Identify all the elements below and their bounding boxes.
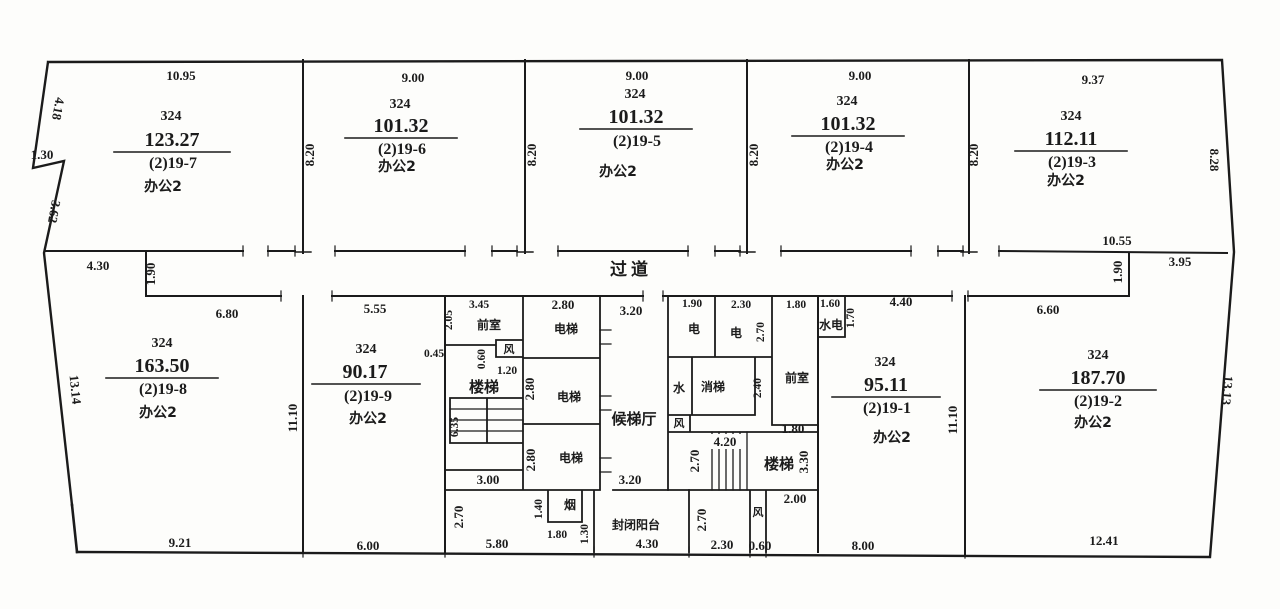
dim-u3-bottom: 10.55 <box>1102 233 1132 248</box>
unit-house-no: 324 <box>356 342 377 357</box>
dim-u5-top: 9.00 <box>626 68 649 83</box>
dim-balcony-w: 4.30 <box>636 536 659 551</box>
dim-front-h: 2.05 <box>443 310 455 330</box>
electric1-label: 电 <box>688 321 700 336</box>
dim-u9-top: 5.55 <box>364 301 387 316</box>
unit-house-no: 324 <box>625 87 646 102</box>
unit-19-3: 324 112.11 (2)19-3 办公2 <box>1015 109 1127 189</box>
elevator1-label: 电梯 <box>554 321 578 336</box>
dim-elev2-h: 2.80 <box>522 378 537 401</box>
elevator-lobby-label: 候梯厅 <box>611 410 656 428</box>
dim-lobby-top: 3.20 <box>620 303 643 318</box>
dim-corridor-r2: 6.60 <box>1037 302 1060 317</box>
dim-front2-b: 1.80 <box>782 421 805 436</box>
unit-area: 95.11 <box>864 374 908 396</box>
dim-right-lower: 13.13 <box>1219 375 1237 406</box>
unit-area: 112.11 <box>1045 128 1098 150</box>
unit-use: 办公2 <box>1047 172 1085 189</box>
dim-left-lower: 13.14 <box>66 374 84 405</box>
vent-shaft-label: 风 <box>504 342 515 356</box>
dim-u3-top: 9.37 <box>1082 72 1105 87</box>
unit-area: 123.27 <box>145 129 200 151</box>
unit-parcel: (2)19-1 <box>863 400 911 417</box>
smoke-shaft-label: 烟 <box>564 498 576 512</box>
dim-fire-h: 2.40 <box>752 378 764 398</box>
elevator-door-ticks <box>600 330 611 472</box>
dim-wall4: 8.20 <box>966 144 981 167</box>
dim-notch-right: 3.95 <box>1169 254 1192 269</box>
vent-shaft3-label: 风 <box>753 505 764 519</box>
unit-area: 90.17 <box>343 361 388 383</box>
unit-parcel: (2)19-9 <box>344 388 392 405</box>
dim-under-w: 5.80 <box>486 536 509 551</box>
dim-u8-top: 6.80 <box>216 306 239 321</box>
vent-shaft2-label: 风 <box>674 416 685 430</box>
dim-balcony-h: 1.30 <box>579 524 591 544</box>
unit-parcel: (2)19-4 <box>825 139 873 156</box>
stairs-label: 楼梯 <box>469 378 499 396</box>
dim-corridor-r1: 4.40 <box>890 294 913 309</box>
dim-bottom-a: 2.30 <box>711 537 734 552</box>
dim-vent-h: 0.60 <box>476 349 488 369</box>
unit-house-no: 324 <box>837 94 858 109</box>
dim-u9-left: 11.10 <box>285 404 300 433</box>
dim-smoke-h: 1.40 <box>533 499 545 519</box>
unit-parcel: (2)19-7 <box>149 155 197 172</box>
unit-use: 办公2 <box>139 404 177 421</box>
dim-step-left: 1.90 <box>143 263 158 286</box>
dim-we-h: 1.70 <box>845 308 857 328</box>
dim-u4-top: 9.00 <box>849 68 872 83</box>
unit-19-6: 324 101.32 (2)19-6 办公2 <box>345 97 457 175</box>
dim-elec2-w: 2.30 <box>731 299 751 311</box>
dim-left-a: 4.18 <box>49 96 68 122</box>
unit-use: 办公2 <box>873 429 911 446</box>
dim-wall2: 8.20 <box>524 144 539 167</box>
fire-elevator-label: 消梯 <box>701 379 725 394</box>
dim-stair2-r: 3.30 <box>796 451 811 474</box>
dim-step-right: 1.90 <box>1110 261 1125 284</box>
dim-stair-w: 3.00 <box>477 472 500 487</box>
elevator3-label: 电梯 <box>559 450 583 465</box>
unit-use: 办公2 <box>1074 414 1112 431</box>
floor-plan-page: 324 123.27 (2)19-7 办公2 324 101.32 (2)19-… <box>0 0 1280 609</box>
front-room-right-label: 前室 <box>785 370 809 385</box>
dim-left-c: 3.62 <box>45 199 64 224</box>
dim-u8-bottom: 9.21 <box>169 535 192 550</box>
corridor-top-wall <box>46 251 1227 253</box>
dim-under-h: 2.70 <box>451 506 466 529</box>
dim-stair2-l: 2.70 <box>687 450 702 473</box>
unit-19-9: 324 90.17 (2)19-9 办公2 <box>312 342 420 427</box>
dim-bottom-c: 8.00 <box>852 538 875 553</box>
unit-19-2: 324 187.70 (2)19-2 办公2 <box>1040 348 1156 431</box>
dim-u6-top: 9.00 <box>402 70 425 85</box>
unit-parcel: (2)19-3 <box>1048 154 1096 171</box>
unit-parcel: (2)19-5 <box>613 133 661 150</box>
dim-left-b: 1.30 <box>31 147 54 162</box>
elevator2-label: 电梯 <box>557 389 581 404</box>
unit-19-4: 324 101.32 (2)19-4 办公2 <box>792 94 904 173</box>
unit-area: 101.32 <box>821 113 876 135</box>
dim-corridor-left: 4.30 <box>87 258 110 273</box>
water-shaft-label: 水 <box>673 380 686 395</box>
unit-19-8: 324 163.50 (2)19-8 办公2 <box>106 336 218 421</box>
electric2-label: 电 <box>730 325 742 340</box>
unit-house-no: 324 <box>875 355 896 370</box>
dim-bottom-b: 0.60 <box>749 538 772 553</box>
dim-smoke-w: 1.80 <box>547 529 567 541</box>
unit-parcel: (2)19-8 <box>139 381 187 398</box>
corridor-label: 过道 <box>610 259 652 280</box>
dim-stair2-w: 4.20 <box>714 434 737 449</box>
unit-19-5: 324 101.32 (2)19-5 办公2 <box>580 87 692 180</box>
unit-parcel: (2)19-2 <box>1074 393 1122 410</box>
unit-area: 187.70 <box>1071 367 1126 389</box>
unit-house-no: 324 <box>390 97 411 112</box>
dim-wall1: 8.20 <box>302 144 317 167</box>
unit-use: 办公2 <box>349 410 387 427</box>
dim-we-w: 1.60 <box>820 298 840 310</box>
dim-elev-w: 2.80 <box>552 297 575 312</box>
water-electric-label: 水电 <box>819 317 843 332</box>
floor-plan-canvas: 324 123.27 (2)19-7 办公2 324 101.32 (2)19-… <box>0 0 1280 609</box>
dim-stair-h: 6.35 <box>449 417 461 437</box>
unit-house-no: 324 <box>152 336 173 351</box>
dim-front-w: 3.45 <box>469 299 489 311</box>
unit-house-no: 324 <box>1061 109 1082 124</box>
dim-u9-bottom: 6.00 <box>357 538 380 553</box>
stairs-right-label: 楼梯 <box>764 455 794 473</box>
unit-parcel: (2)19-6 <box>378 141 426 158</box>
unit-area: 101.32 <box>374 115 429 137</box>
dim-lobby-bottom: 3.20 <box>619 472 642 487</box>
unit-house-no: 324 <box>1088 348 1109 363</box>
dim-u2-bottom: 12.41 <box>1089 533 1118 548</box>
dim-landing-w: 2.00 <box>784 491 807 506</box>
unit-19-1: 324 95.11 (2)19-1 办公2 <box>832 355 940 446</box>
dim-u1-left: 11.10 <box>945 406 960 435</box>
dim-wall3: 8.20 <box>746 144 761 167</box>
dim-elev3-h: 2.80 <box>523 449 538 472</box>
dim-elec1-w: 1.90 <box>682 298 702 310</box>
dim-right-upper: 8.28 <box>1207 149 1222 172</box>
dim-vent-w: 1.20 <box>497 365 517 377</box>
unit-house-no: 324 <box>161 109 182 124</box>
dim-front2-w: 1.80 <box>786 299 806 311</box>
unit-use: 办公2 <box>599 163 637 180</box>
unit-area: 163.50 <box>135 355 190 377</box>
unit-use: 办公2 <box>378 158 416 175</box>
dim-lower-h: 2.70 <box>694 509 709 532</box>
red-boundary-segment <box>72 505 77 552</box>
unit-area: 101.32 <box>609 106 664 128</box>
dim-elec2-h: 2.70 <box>755 322 767 342</box>
front-room-label: 前室 <box>477 317 501 332</box>
unit-use: 办公2 <box>144 178 182 195</box>
unit-19-7: 324 123.27 (2)19-7 办公2 <box>114 109 230 195</box>
dim-u7-top: 10.95 <box>166 68 196 83</box>
dim-gap: 0.45 <box>424 348 444 360</box>
balcony-label: 封闭阳台 <box>612 517 660 532</box>
unit-use: 办公2 <box>826 156 864 173</box>
